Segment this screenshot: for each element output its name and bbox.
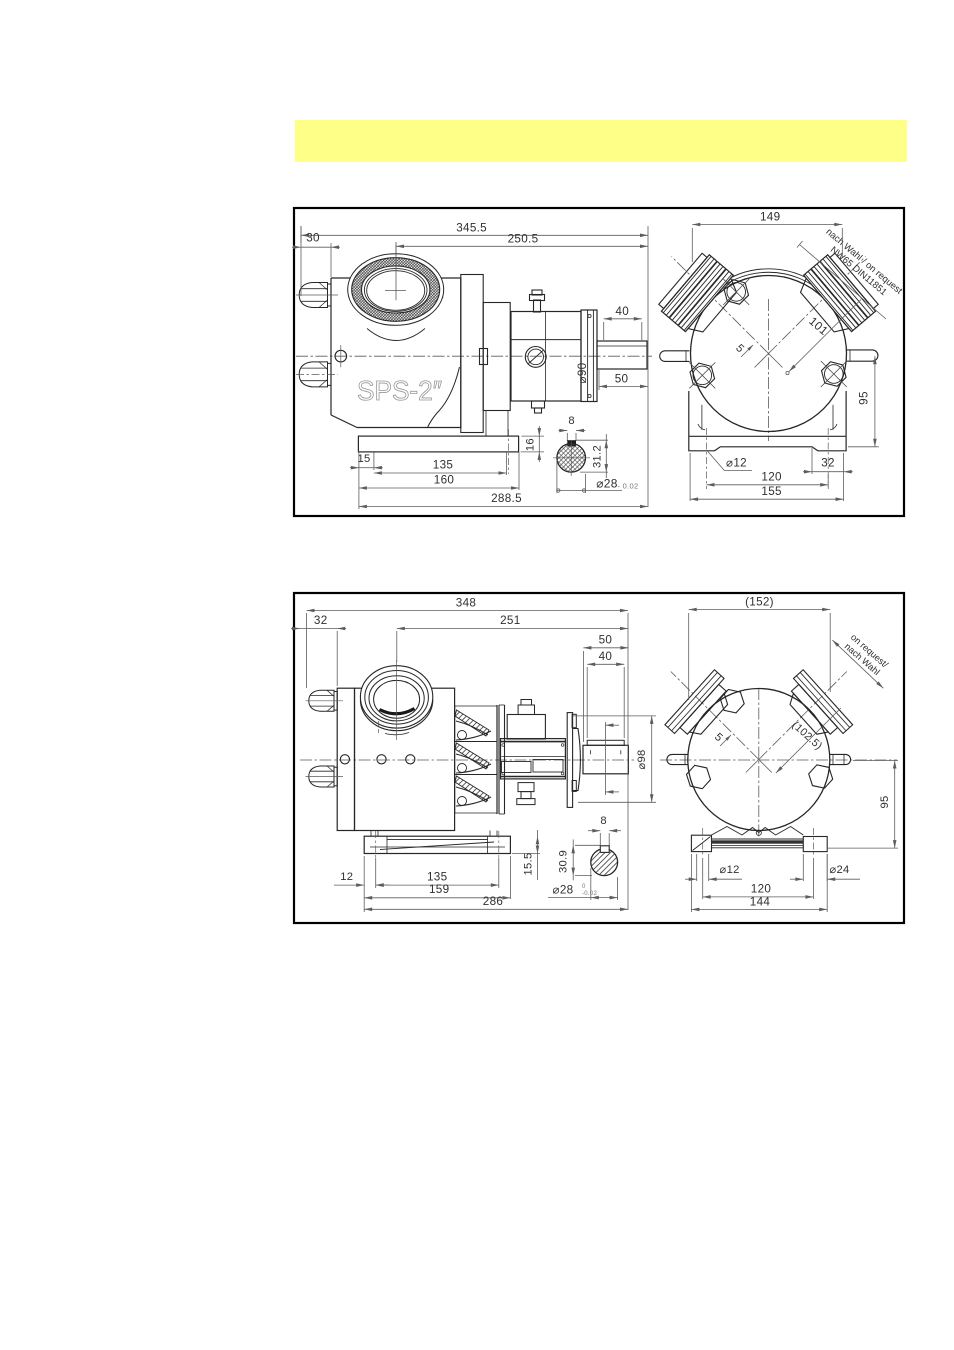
svg-text:286: 286 [483, 895, 503, 908]
svg-text:8: 8 [600, 815, 607, 827]
svg-text:144: 144 [750, 895, 771, 908]
svg-text:⌀12: ⌀12 [726, 457, 747, 470]
svg-text:250.5: 250.5 [508, 233, 539, 246]
svg-text:149: 149 [760, 211, 780, 224]
svg-text:155: 155 [761, 485, 782, 498]
svg-text:40: 40 [615, 305, 629, 318]
svg-text:95: 95 [879, 795, 891, 808]
svg-text:120: 120 [761, 471, 782, 484]
svg-text:251: 251 [500, 614, 520, 627]
svg-text:288.5: 288.5 [491, 492, 522, 505]
svg-text:⌀24: ⌀24 [829, 864, 849, 876]
svg-text:135: 135 [427, 871, 448, 884]
svg-text:40: 40 [599, 650, 613, 663]
svg-text:16: 16 [524, 438, 536, 451]
svg-text:32: 32 [314, 614, 328, 627]
svg-text:101: 101 [806, 315, 830, 338]
svg-text:50: 50 [615, 373, 629, 386]
svg-text:- 0.02: - 0.02 [618, 482, 639, 491]
svg-text:⌀98: ⌀98 [636, 749, 648, 769]
svg-text:(152): (152) [745, 596, 774, 609]
svg-text:15.5: 15.5 [523, 853, 535, 876]
svg-text:8: 8 [568, 415, 575, 427]
svg-text:12: 12 [340, 871, 353, 883]
svg-text:SPS-2″: SPS-2″ [357, 375, 442, 406]
svg-text:⌀90: ⌀90 [576, 362, 589, 383]
svg-text:30.9: 30.9 [558, 850, 570, 873]
svg-text:⌀28: ⌀28 [553, 884, 574, 897]
svg-text:159: 159 [429, 883, 449, 896]
svg-text:348: 348 [456, 597, 476, 610]
svg-text:0: 0 [582, 884, 586, 890]
svg-text:32: 32 [821, 457, 835, 470]
svg-text:345.5: 345.5 [456, 222, 487, 235]
svg-text:135: 135 [433, 459, 454, 472]
svg-text:-0.02: -0.02 [582, 891, 598, 897]
svg-text:15: 15 [357, 453, 370, 465]
svg-text:5: 5 [712, 731, 725, 744]
svg-text:30: 30 [306, 232, 320, 245]
svg-text:31.2: 31.2 [592, 445, 604, 468]
svg-text:95: 95 [858, 391, 871, 405]
svg-text:⌀28: ⌀28 [596, 477, 617, 491]
svg-text:160: 160 [434, 474, 455, 487]
svg-text:50: 50 [599, 634, 613, 647]
svg-text:120: 120 [751, 883, 772, 896]
svg-text:⌀12: ⌀12 [720, 864, 740, 876]
